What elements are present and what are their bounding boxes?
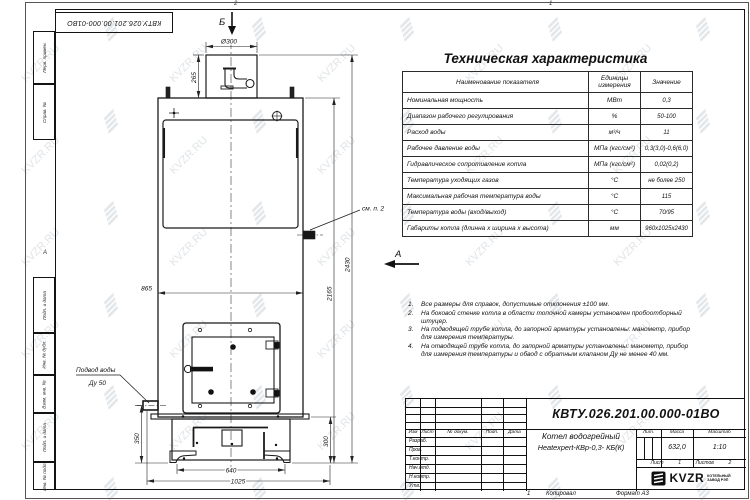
tb-sheet-value: 1	[678, 460, 681, 466]
spec-cell-name: Диапазон рабочего регулирования	[403, 109, 589, 125]
spec-row: Диапазон рабочего регулирования%50-100	[403, 109, 693, 125]
note-item: 2.На боковой стенке котла в области топо…	[408, 310, 700, 326]
kvzr-logo-icon	[651, 471, 666, 486]
doc-number: КВТУ.026.201.00.000-01ВО	[527, 399, 745, 428]
tb-scale-label: Масштаб	[693, 430, 746, 435]
spec-row: Температура уходящих газов°Сне более 250	[403, 173, 693, 189]
tb-sheets-value: 2	[729, 460, 732, 466]
note-text: Все размеры для справок, допустимые откл…	[421, 301, 700, 309]
tb-sheet-label: Лист	[651, 460, 664, 466]
spec-row: Гидравлическое сопротивление котлаМПа (к…	[403, 157, 693, 173]
note-number: 4.	[408, 343, 421, 359]
flange-bolt-left	[182, 415, 185, 418]
flange-bolt-right	[277, 415, 280, 418]
spec-cell-name: Номинальная мощность	[403, 93, 589, 109]
spec-cell-value: 50-100	[641, 109, 693, 125]
format-label: Формат А3	[616, 491, 649, 497]
tb-mass-label: Масса	[661, 430, 693, 435]
dim-chimney-h: 265	[191, 72, 198, 84]
elbow-pipe	[221, 69, 254, 90]
spec-cell-value: 0,3	[641, 93, 693, 109]
door-knobs	[208, 344, 256, 395]
chimney-outline	[206, 55, 257, 98]
spec-cell-value: 0,02(0,2)	[641, 157, 693, 173]
spec-cell-name: Гидравлическое сопротивление котла	[403, 157, 589, 173]
top-pin-right	[290, 87, 294, 98]
spec-row: Номинальная мощностьМВт0,3	[403, 93, 693, 109]
spec-cell-units: МПа (кгс/см²)	[589, 141, 641, 157]
spec-row: Температура воды (вход/выход)°С70/95	[403, 205, 693, 221]
view-b-arrow	[228, 12, 236, 35]
spec-cell-name: Габариты котла (длинна х ширина х высота…	[403, 221, 589, 237]
view-a-label: А	[394, 249, 401, 260]
spec-cell-units: %	[589, 109, 641, 125]
spec-col-name: Наименование показателя	[403, 72, 589, 93]
tb-sheet-row: Лист 1 Листов 2	[636, 459, 746, 467]
spec-cell-name: Температура воды (вход/выход)	[403, 205, 589, 221]
tb-col-date: Дата	[503, 430, 526, 435]
tb-row-nachotd: Нач.отд.	[407, 464, 437, 473]
spec-cell-units: °С	[589, 205, 641, 221]
spec-title: Техническая характеристика	[402, 51, 689, 66]
spec-cell-value: 11	[641, 125, 693, 141]
tb-col-izm: Изм	[406, 430, 420, 435]
spec-cell-name: Максимальная рабочая температура воды	[403, 189, 589, 205]
note-number: 3.	[408, 326, 421, 342]
spec-table: Наименование показателя Единицы измерени…	[402, 71, 693, 237]
callout-leader	[310, 210, 360, 230]
spec-cell-units: МВт	[589, 93, 641, 109]
spec-row: Габариты котла (длинна х ширина х высота…	[403, 221, 693, 237]
spec-cell-value: 70/95	[641, 205, 693, 221]
tb-lit-label: Лит.	[636, 430, 661, 435]
product-title-line2: Heatexpert-КВр-0,3- КБ(К)	[527, 443, 635, 452]
note-item: 4.На отводящей трубе котла, до запорной …	[408, 343, 700, 359]
boiler-body-outline	[158, 98, 303, 417]
view-b-label: Б	[219, 17, 225, 28]
spec-cell-name: Рабочее давление воды	[403, 141, 589, 157]
spec-cell-value: 960х1025х2430	[641, 221, 693, 237]
dim-base-width: 1025	[231, 479, 246, 486]
spec-cell-units: м³/ч	[589, 125, 641, 141]
note-text: На боковой стенке котла в области топочн…	[421, 310, 700, 326]
spec-cell-value: не более 250	[641, 173, 693, 189]
brand-name: KVZR	[669, 471, 704, 485]
ash-opening	[193, 428, 277, 460]
spec-header-row: Наименование показателя Единицы измерени…	[403, 72, 693, 93]
view-a-arrow	[384, 260, 419, 268]
spec-col-units-line2: измерения	[589, 82, 640, 89]
dim-total-height: 2430	[345, 257, 352, 273]
spec-row: Рабочее давление водыМПа (кгс/см²)0,3(3,…	[403, 141, 693, 157]
spec-row: Расход водым³/ч11	[403, 125, 693, 141]
dim-body-height: 2165	[327, 286, 334, 302]
tb-mass-value: 632,0	[661, 444, 693, 451]
tb-col-doc: № докум.	[435, 430, 481, 435]
tb-scale-value: 1:10	[693, 444, 746, 451]
heat-exchanger-panel	[163, 120, 298, 228]
drawing-sheet: { "watermark": { "text": "KVZR.RU" }, "s…	[0, 0, 750, 500]
spec-cell-units: °С	[589, 189, 641, 205]
dim-body-width: 865	[141, 286, 152, 293]
note-text: На подводящей трубе котла, до запорной а…	[421, 326, 700, 342]
top-plus-mark	[169, 108, 179, 118]
tb-row-nkontr: Н.контр.	[407, 473, 437, 482]
inlet-leader	[76, 375, 149, 403]
dim-chimney-dia: Ø300	[220, 39, 237, 46]
title-block: Изм Лист № докум. Подп. Дата Разраб. Про…	[405, 398, 745, 490]
spec-col-units-line1: Единицы	[589, 75, 640, 82]
water-inlet-label-2: Ду 50	[88, 380, 106, 387]
notes-list: 1.Все размеры для справок, допустимые от…	[408, 301, 700, 360]
product-title-line1: Котел водогрейный	[527, 432, 635, 441]
tb-row-prov: Пров.	[407, 446, 437, 455]
spec-row: Максимальная рабочая температура воды°С1…	[403, 189, 693, 205]
spec-col-units: Единицы измерения	[589, 72, 641, 93]
spec-cell-name: Расход воды	[403, 125, 589, 141]
tb-row-tkontr: Т.контр.	[407, 455, 437, 464]
dim-base-inner-width: 640	[226, 468, 237, 475]
tb-col-sign: Подп.	[481, 430, 503, 435]
brand-sub-line2: ЗАВОД РЭП	[707, 478, 730, 482]
callout-p2-label: см. п. 2	[362, 206, 385, 213]
spec-cell-units: МПа (кгс/см²)	[589, 157, 641, 173]
note-text: На отводящей трубе котла, до запорной ар…	[421, 343, 700, 359]
spec-cell-value: 0,3(3,0)-0,6(6,0)	[641, 141, 693, 157]
spec-col-value: Значение	[641, 72, 693, 93]
spec-cell-name: Температура уходящих газов	[403, 173, 589, 189]
tb-row-razrab: Разраб.	[407, 437, 437, 446]
tb-col-list: Лист	[420, 430, 435, 435]
base-feet	[170, 451, 290, 463]
door-hinges	[266, 341, 279, 397]
water-inlet-label-1: Подвод воды	[76, 366, 116, 374]
dim-inlet-height: 350	[134, 433, 141, 444]
company-logo: KVZR КОТЕЛЬНЫЙ ЗАВОД РЭП	[636, 467, 746, 489]
door-handle	[184, 365, 213, 372]
tb-row-utv: Утв.	[407, 482, 437, 491]
note-number: 2.	[408, 310, 421, 326]
spec-cell-value: 115	[641, 189, 693, 205]
top-pin-left	[166, 87, 170, 98]
bottom-zone-mark: 1	[527, 491, 530, 497]
spec-cell-units: °С	[589, 173, 641, 189]
copied-label: Копировал	[546, 491, 576, 497]
note-number: 1.	[408, 301, 421, 309]
spec-cell-units: мм	[589, 221, 641, 237]
tb-sheets-label: Листов	[696, 460, 714, 466]
dim-base-height: 300	[323, 436, 330, 447]
note-item: 1.Все размеры для справок, допустимые от…	[408, 301, 700, 309]
note-item: 3.На подводящей трубе котла, до запорной…	[408, 326, 700, 342]
